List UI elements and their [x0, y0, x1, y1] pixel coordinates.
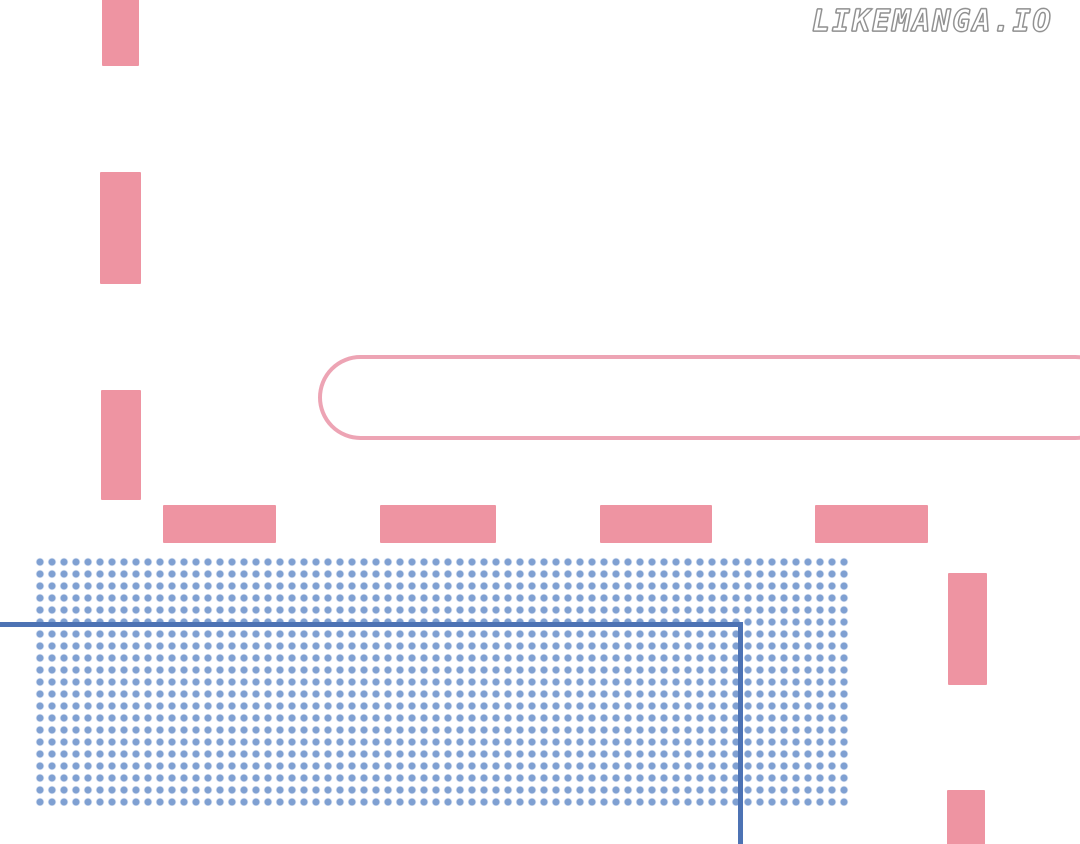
- pink-dash-horizontal-1: [163, 505, 276, 543]
- pink-dash-right-upper: [948, 573, 987, 685]
- pink-dash-mid-left: [101, 390, 141, 500]
- speech-bubble-outline: [318, 355, 1080, 440]
- pink-dash-upper-left: [100, 172, 141, 284]
- blue-panel-border: [0, 622, 743, 844]
- manga-page: LIKEMANGA.IO: [0, 0, 1080, 844]
- pink-dash-horizontal-3: [600, 505, 712, 543]
- pink-dash-top-left: [102, 0, 139, 66]
- pink-dash-horizontal-2: [380, 505, 496, 543]
- site-watermark: LIKEMANGA.IO: [812, 4, 1080, 39]
- pink-dash-horizontal-4: [815, 505, 928, 543]
- pink-dash-right-bottom: [947, 790, 985, 844]
